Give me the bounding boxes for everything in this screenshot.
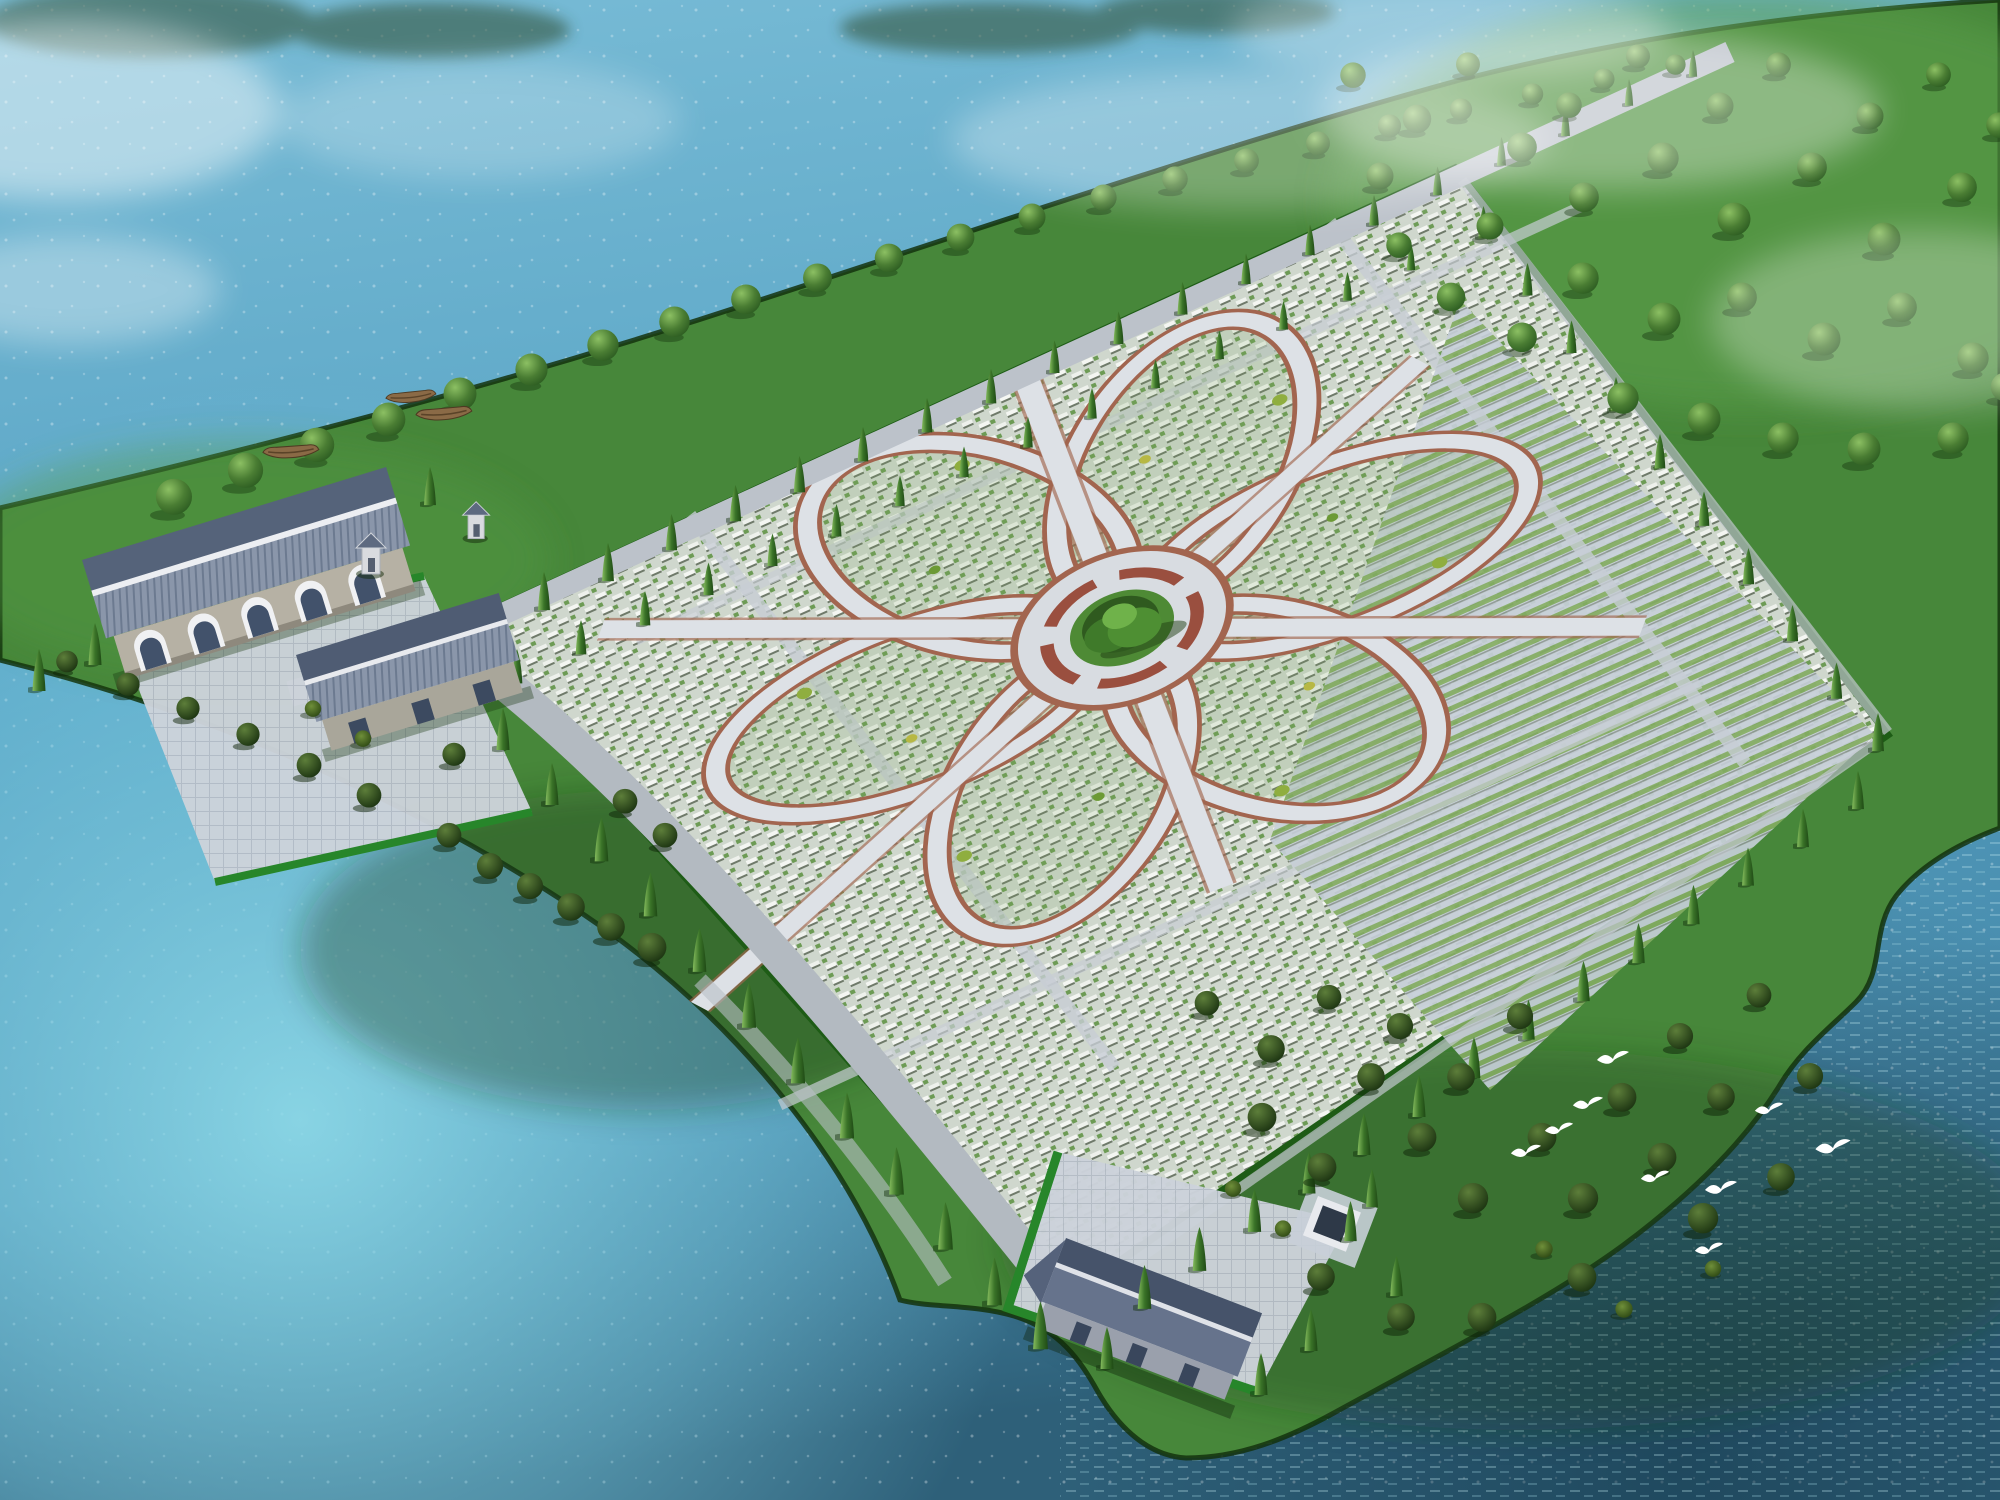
aerial-rendering: Bird's-eye architectural rendering of a … xyxy=(0,0,2000,1500)
